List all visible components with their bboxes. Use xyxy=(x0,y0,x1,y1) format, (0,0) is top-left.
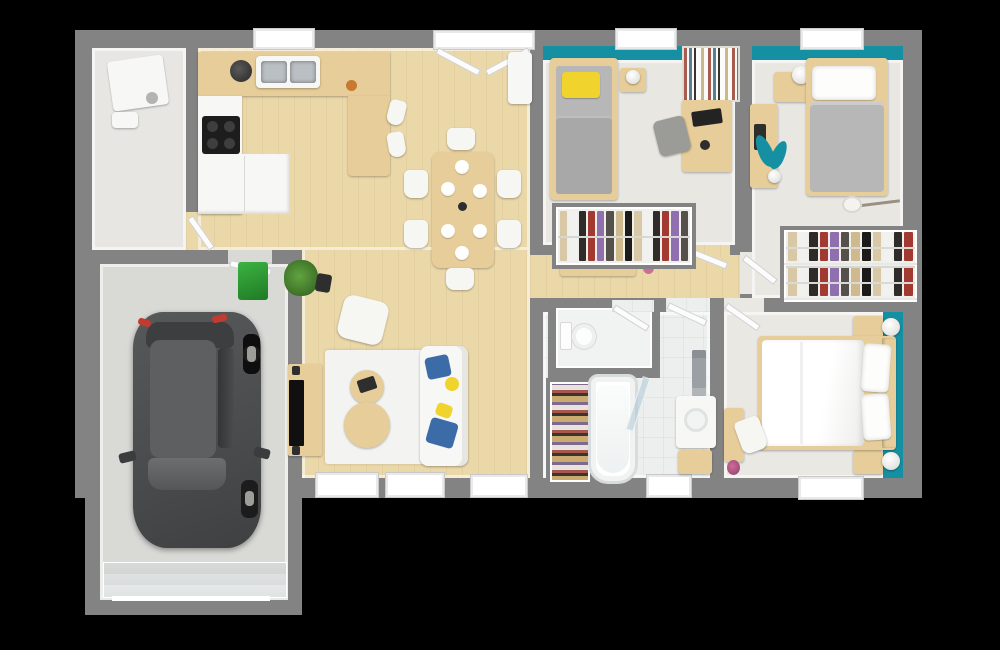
bedroom2-floor-ball xyxy=(768,170,781,183)
bedroom2-window xyxy=(800,28,864,50)
laundry-storage-box xyxy=(112,112,138,128)
dining-chair-left-2 xyxy=(404,220,428,248)
cooktop-burner-1 xyxy=(207,121,218,132)
cooktop-burner-2 xyxy=(224,121,235,132)
sink-basin-left xyxy=(261,61,287,83)
kitchen-peninsula xyxy=(348,96,390,176)
dining-chair-left-1 xyxy=(404,170,428,198)
dining-chair-top xyxy=(447,128,475,150)
sink-basin xyxy=(684,408,708,432)
washing-machine xyxy=(107,54,169,111)
coffee-table-large xyxy=(344,402,390,448)
master-lamp-bottom xyxy=(882,452,900,470)
bedroom1-desk-mic xyxy=(700,140,710,150)
wall-tv xyxy=(289,380,304,446)
bedroom1-window xyxy=(615,28,677,50)
master-duvet-fold xyxy=(800,342,803,444)
bedroom2-pillow xyxy=(812,66,876,100)
plate-1 xyxy=(455,160,469,174)
bedroom2-double-closet xyxy=(780,226,921,306)
bedroom1-blanket xyxy=(556,116,612,194)
dining-chair-right-1 xyxy=(497,170,521,198)
bedroom1-yellow-pillow xyxy=(562,72,600,98)
living-window-2 xyxy=(385,472,445,498)
bedroom1-bookshelf xyxy=(682,46,740,102)
car-side-glass xyxy=(218,348,234,448)
living-plant xyxy=(284,260,318,296)
car-wheel-rim-1 xyxy=(247,346,256,362)
closet-rail-top xyxy=(784,230,917,265)
toilet-bowl xyxy=(571,323,597,350)
guitar-body xyxy=(842,196,862,213)
master-window xyxy=(798,476,864,500)
master-nightstand-bottom xyxy=(853,450,883,474)
dining-chair-right-2 xyxy=(497,220,521,248)
floor-plan-canvas xyxy=(0,0,1000,650)
sectional-garage-door xyxy=(103,562,287,598)
master-pillow-1 xyxy=(860,343,891,393)
car-roof xyxy=(150,340,216,458)
master-flower xyxy=(727,460,740,475)
master-duvet xyxy=(762,340,864,446)
living-window-1 xyxy=(315,472,379,498)
cabinet-seam xyxy=(244,156,245,212)
bedroom1-lamp xyxy=(626,70,640,84)
living-stool xyxy=(315,273,333,293)
master-lamp-top xyxy=(882,318,900,336)
car-wheel-rim-2 xyxy=(245,491,254,506)
sink-basin-right xyxy=(290,61,316,83)
bathroom-wooden-crate xyxy=(678,450,712,474)
kitchen-jar-1 xyxy=(346,80,357,91)
table-vase xyxy=(458,202,467,211)
plate-5 xyxy=(473,224,487,238)
tv-speaker-1 xyxy=(292,366,300,375)
bathroom-shoe-shelf xyxy=(546,378,594,486)
coffee-machine xyxy=(230,60,252,82)
garage-green-bin xyxy=(238,262,268,300)
dining-chair-bottom xyxy=(446,268,474,290)
towel-rack xyxy=(692,350,706,396)
closet-rail-bottom xyxy=(784,265,917,300)
plate-3 xyxy=(473,184,487,198)
cooktop-burner-3 xyxy=(207,138,218,149)
bathroom-window xyxy=(646,474,692,498)
cooktop-burner-4 xyxy=(224,138,235,149)
washing-machine-drum xyxy=(146,92,158,104)
plate-4 xyxy=(441,224,455,238)
plate-6 xyxy=(455,246,469,260)
living-window-3 xyxy=(470,474,528,498)
bedroom1-open-wardrobe xyxy=(552,203,696,269)
entry-console xyxy=(508,52,532,104)
master-pillow-2 xyxy=(860,393,891,441)
sofa-cushion-yellow-1 xyxy=(445,377,459,391)
bedroom2-duvet xyxy=(810,102,884,192)
car-windshield xyxy=(148,458,226,490)
tv-speaker-2 xyxy=(292,446,300,455)
kitchen-window xyxy=(253,28,315,50)
garage-door-threshold xyxy=(112,596,270,601)
entry-door-frame xyxy=(433,30,535,50)
plate-2 xyxy=(441,182,455,196)
